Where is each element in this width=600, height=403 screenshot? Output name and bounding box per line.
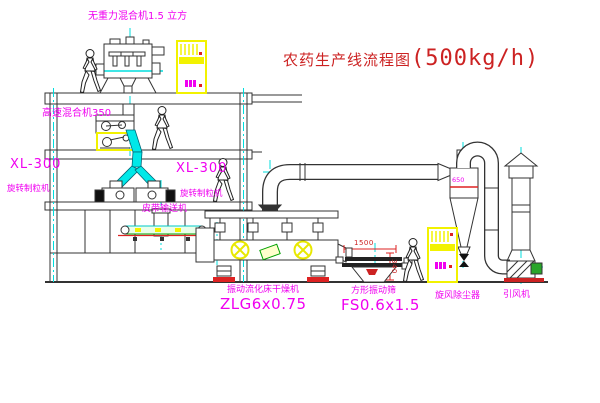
mid-slab bbox=[45, 150, 252, 159]
exhaust-stack bbox=[505, 153, 537, 261]
sieve-model-label: FS0.6x1.5 bbox=[341, 298, 420, 313]
cyclone-dim-label: 650 bbox=[452, 177, 464, 184]
granulator-right-model-label: XL-300 bbox=[176, 162, 227, 175]
indicator-lamp bbox=[450, 233, 453, 236]
top-slab bbox=[45, 93, 252, 104]
fan-name-label: 引风机 bbox=[503, 291, 530, 300]
dryer-top-frame bbox=[205, 211, 338, 218]
dryer-hangers bbox=[215, 218, 323, 240]
fluid-bed-dryer bbox=[196, 211, 350, 282]
granulator-right-name-label: 旋转制粒机 bbox=[180, 190, 223, 199]
worker-figure-2 bbox=[153, 107, 173, 150]
dryer-inlet-box bbox=[196, 228, 214, 262]
control-cabinet-1 bbox=[177, 41, 206, 93]
belt-conveyor-label: 皮带输送机 bbox=[142, 205, 187, 214]
mixer-paddles bbox=[109, 52, 145, 66]
high-speed-mixer-label: 高速混合机350 bbox=[42, 109, 111, 119]
cyclone-discharge-valve bbox=[459, 261, 469, 267]
granulator-left-motor bbox=[95, 190, 104, 202]
sieve-width-dim-label: 1500 bbox=[354, 240, 374, 247]
sieve-name-label: 方形振动筛 bbox=[351, 287, 396, 296]
belt-conveyor bbox=[118, 226, 206, 241]
mixer-discharge-pipe bbox=[123, 104, 134, 115]
diagram-title: 农药生产线流程图(500kg/h) bbox=[283, 46, 539, 71]
cyclone-inlet-neck bbox=[438, 164, 450, 181]
flow-diagram-canvas: 农药生产线流程图(500kg/h) 无重力混合机1.5 立方 高速混合机350 … bbox=[0, 0, 600, 403]
gravity-mixer-label: 无重力混合机1.5 立方 bbox=[88, 12, 187, 22]
stack-cap bbox=[505, 153, 537, 166]
granulator-left-machine bbox=[95, 181, 136, 202]
induced-draft-fan bbox=[504, 261, 544, 282]
granulator-left-model-label: XL-300 bbox=[10, 158, 61, 171]
control-cabinet-2 bbox=[428, 228, 457, 282]
granulator-right-machine bbox=[134, 181, 175, 202]
fan-base bbox=[504, 278, 544, 282]
dryer-name-label: 振动流化床干燥机 bbox=[227, 286, 299, 295]
sieve-height-dim-label: 340 bbox=[390, 259, 397, 274]
title-text: 农药生产线流程图 bbox=[283, 51, 411, 69]
dryer-feet bbox=[213, 266, 329, 282]
dryer-exhaust-duct bbox=[259, 163, 450, 217]
cabinet-buttons bbox=[185, 80, 196, 87]
dryer-model-label: ZLG6x0.75 bbox=[220, 297, 307, 312]
granulator-right-motor bbox=[166, 190, 175, 202]
vibrating-sieve bbox=[336, 245, 412, 282]
indicator-lamp bbox=[199, 52, 202, 55]
fan-motor bbox=[531, 263, 542, 274]
cyclone-name-label: 旋风除尘器 bbox=[435, 292, 480, 301]
cabinet-buttons bbox=[435, 262, 446, 269]
title-capacity: (500kg/h) bbox=[411, 46, 539, 71]
granulator-left-name-label: 旋转制粒机 bbox=[7, 185, 50, 194]
